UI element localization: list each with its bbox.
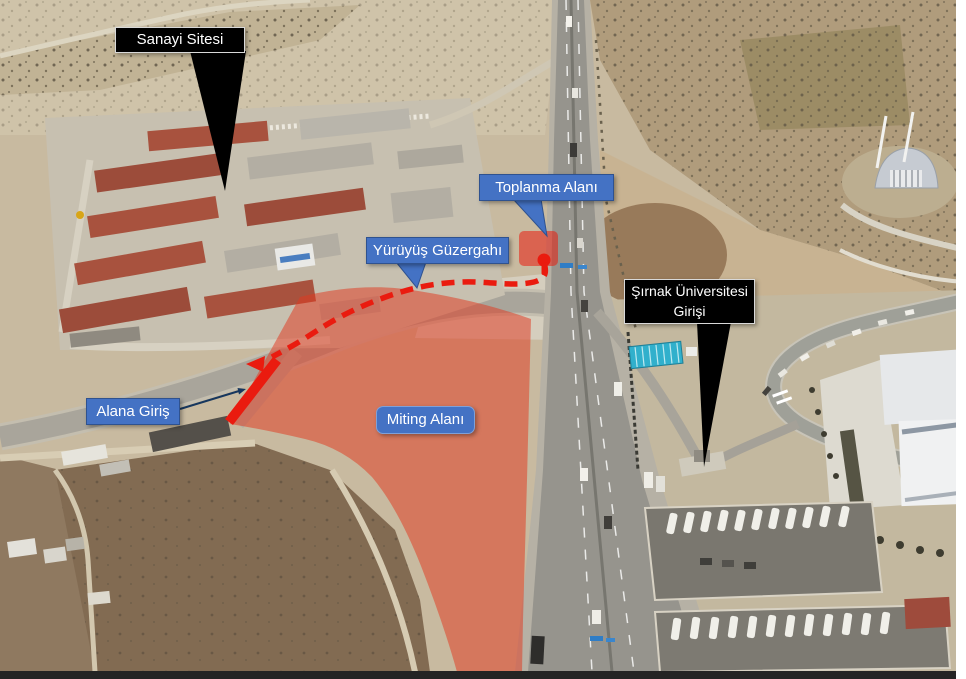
label-text: Alana Giriş	[96, 403, 169, 420]
label-text-line2: Girişi	[674, 302, 706, 322]
label-sanayi-sitesi: Sanayi Sitesi	[115, 27, 245, 53]
annotated-aerial-map: Sanayi Sitesi Toplanma Alanı Yürüyüş Güz…	[0, 0, 966, 679]
label-yuruyus-guzergahi: Yürüyüş Güzergahı	[366, 237, 509, 264]
university-gate	[694, 450, 710, 462]
aerial-photo-scene	[0, 0, 966, 679]
label-alana-giris: Alana Giriş	[86, 398, 180, 425]
label-text: Sanayi Sitesi	[137, 31, 224, 48]
right-margin	[956, 0, 966, 679]
label-text: Yürüyüş Güzergahı	[373, 242, 502, 259]
label-text-line1: Şırnak Üniversitesi	[631, 282, 748, 302]
excavator	[76, 211, 84, 219]
label-text: Toplanma Alanı	[495, 179, 598, 196]
label-text: Miting Alanı	[387, 411, 465, 428]
label-universite-girisi: Şırnak Üniversitesi Girişi	[624, 279, 755, 324]
label-toplanma-alani: Toplanma Alanı	[479, 174, 614, 201]
label-miting-alani: Miting Alanı	[376, 406, 475, 434]
bottom-strip	[0, 671, 966, 679]
cyan-canopy	[629, 341, 683, 368]
